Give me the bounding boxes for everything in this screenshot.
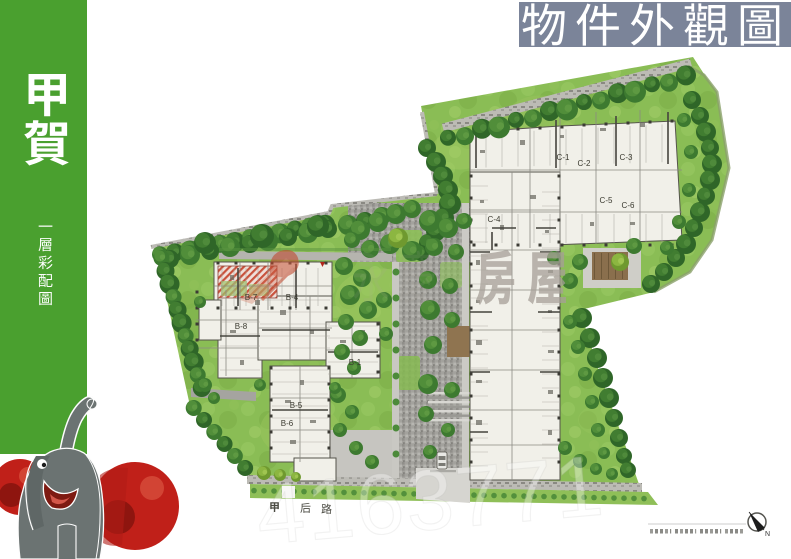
svg-text:C-3: C-3 — [620, 153, 633, 162]
svg-text:C-1: C-1 — [557, 153, 570, 162]
svg-text:B-4: B-4 — [286, 293, 299, 302]
svg-text:B-7: B-7 — [245, 293, 258, 302]
svg-text:N: N — [765, 531, 770, 538]
svg-text:B-8: B-8 — [235, 322, 248, 331]
svg-text:B-6: B-6 — [281, 419, 294, 428]
svg-text:C-4: C-4 — [488, 215, 501, 224]
svg-text:C-2: C-2 — [578, 159, 591, 168]
svg-text:B-5: B-5 — [290, 401, 303, 410]
svg-text:C-5: C-5 — [600, 196, 613, 205]
svg-text:B-1: B-1 — [349, 358, 362, 367]
svg-text:C-6: C-6 — [622, 201, 635, 210]
